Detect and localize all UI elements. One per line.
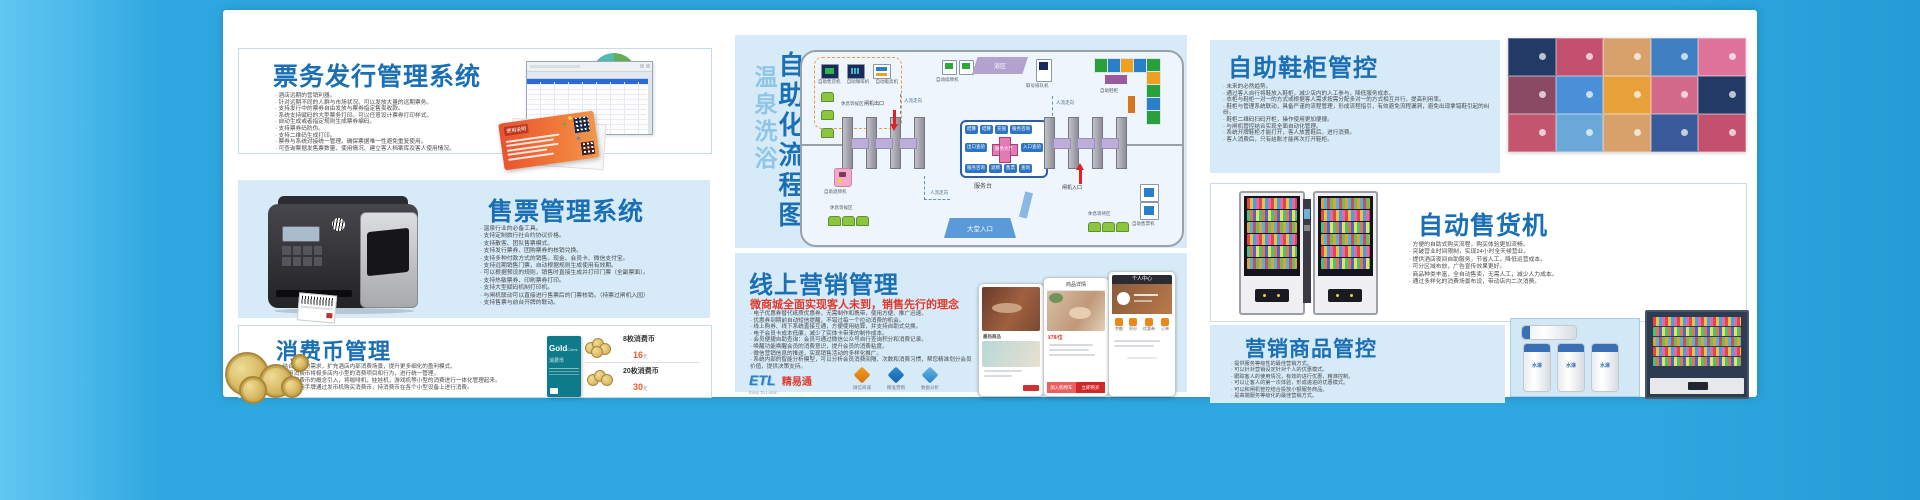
return-machine-icon <box>834 168 852 187</box>
list-item: 鞋柜与管理系统联动，具备严谨的流程管理，形成流程指引，有效避免流程漏洞，避免出现… <box>1223 104 1491 117</box>
phone-product-detail: 商品详情 ¥78/位 加入购物车 立即购买 <box>1043 277 1109 397</box>
list-item: 是高端服务等级化的最佳营销方式。 <box>1231 393 1493 399</box>
service-hall-label: 服务大厅 <box>992 146 1016 152</box>
wechat-mall-icon <box>854 367 871 384</box>
gate-bar <box>1053 138 1071 149</box>
label-printer-photo <box>268 190 423 314</box>
bullet-list: 温泉行业的必备工具。支持定制旅行社合约协议价格。支持散客、团队售票模式。支持发行… <box>480 226 705 307</box>
chairs-icon <box>821 90 835 144</box>
flow-dir-label: 人流走向 <box>904 98 922 104</box>
flow-room: 自助售货机 自助咖啡机 自动贩卖机 休息等候区 自动续牌机 浴区 取号排队机 <box>800 50 1184 247</box>
list-item: 线上购券、线下系统直接互通，方便使用结算，并支持自助式兑换。 <box>750 324 976 331</box>
renew-machine-icon <box>959 60 974 75</box>
bottle-label: 水淋 <box>1524 362 1550 369</box>
panel-title: 自动售货机 <box>1418 206 1548 242</box>
bullet-list: 提供服务等级性的最佳营销方式。可以针对营销设定针对个人的优惠模式。跟踪客人的使用… <box>1231 361 1493 399</box>
rest-area-label: 休息等待区 <box>1088 212 1111 217</box>
renew-machine-label: 自动续牌机 <box>936 78 959 83</box>
panel-ticket-sale: 售票管理系统 温泉行业的必备工具。支持定制旅行社合约协议价格。支持散客、团队售票… <box>238 180 710 318</box>
profile-banner <box>1112 284 1172 314</box>
list-item: 通过多样化的消费场景布设，带动店内二次消费。 <box>1409 279 1734 286</box>
bottle-label: 水淋 <box>1558 362 1584 369</box>
waiting-area-box: 自助售货机 自助咖啡机 自动贩卖机 休息等候区 <box>814 57 902 129</box>
price-text: ¥78/位 <box>1048 334 1105 341</box>
chairs-icon <box>828 214 870 232</box>
bullet-list: 电子优惠券替代纸质优惠券，无需制作和携带，使用方便、推广迅速。优惠券到期前自动短… <box>750 311 976 370</box>
list-item: 支持售票与前台开牌的联动。 <box>480 300 705 307</box>
list-item: 可分区域布放，广告宣传效果更好。 <box>1409 264 1734 271</box>
gold-coins-card: GoldCoins 消费币 <box>547 336 581 397</box>
gate-bar <box>899 138 917 149</box>
lobby-entry: 大堂入口 <box>944 218 1016 238</box>
detail-buttons: 加入购物车 立即购买 <box>1047 382 1105 393</box>
icon-caption: 积分 <box>1129 326 1137 332</box>
feature-icons-row: 微信商城 精准营销 数据分析 <box>853 369 939 391</box>
bullet-list: 方便的自助式购买流程，购买体验更加流畅。突破营业时间限制，实现24小时全天候营业… <box>1409 242 1734 286</box>
small-vending-photo <box>1645 310 1749 399</box>
qr-code-icon <box>581 141 596 156</box>
precise-marketing-icon <box>888 367 905 384</box>
panel-title: 售票管理系统 <box>488 192 644 228</box>
card-brand2: Coins <box>567 347 577 352</box>
service-chip-right: 入口查验 <box>1021 143 1043 152</box>
list-item: 唤醒功能唤醒会员的消费意识，提升会员的消费粘度。 <box>750 344 976 351</box>
list-item: 结算 <box>965 125 978 134</box>
service-hall-cross-icon: 服务大厅 <box>992 137 1016 161</box>
list-item: 服务咨询 <box>965 164 987 173</box>
price-name: 20枚消费币 <box>623 366 659 376</box>
list-item: 酒店远期的营销利器。 <box>275 93 515 100</box>
list-item: 支持发行票券、团购票券的核销兑换。 <box>480 248 705 255</box>
profile-icon-orders[interactable]: 订单 <box>1161 318 1169 332</box>
gate-exit-label: 闸机出口 <box>864 102 884 107</box>
printer-screen <box>282 226 320 242</box>
ticket-machine-icon <box>1140 184 1159 202</box>
bottles-photo: 水淋 水淋 水淋 <box>1510 318 1640 397</box>
panel-shoe-locker: 自助鞋柜管控 未来的必然趋势。通过客人自行将鞋放入鞋柜，减少店内的人工参与，降低… <box>1210 40 1500 173</box>
vending-machine-icon <box>821 64 839 79</box>
service-chips-top: 结算结算充值服务咨询 <box>965 125 1032 134</box>
list-item: 鞋柜二维码扫码开柜，操作使用更加便捷。 <box>1223 117 1491 124</box>
ticket-machine-icon <box>1140 202 1159 220</box>
snack-machine-icon <box>873 64 891 79</box>
bullet-list: 酒店远期的营销利器。针对远期不同的人群与市场状况。可以发放大量的远期票务。支持发… <box>275 93 515 152</box>
list-item: 服务咨询 <box>1010 125 1032 134</box>
poster-canvas: 票务发行管理系统 酒店远期的营销利器。针对远期不同的人群与市场状况。可以发放大量… <box>223 10 1757 397</box>
bathing-photo <box>1047 291 1105 331</box>
locker-cell <box>1146 110 1161 125</box>
gate-bar <box>1077 138 1095 149</box>
price-unit: 元 <box>643 386 648 391</box>
poster-page: { "theme":{"outer_blue":"#2ea7e0","panel… <box>0 0 1920 500</box>
icon-caption: 订单 <box>1161 326 1169 332</box>
printed-label <box>297 292 337 323</box>
list-item: 支持发行中的票券自由发放与票券指定售卖收款。 <box>275 106 515 113</box>
list-item: 客人消费后，只有结账才能再次打开鞋柜。 <box>1223 137 1491 144</box>
feature-data: 数据分析 <box>921 369 939 391</box>
logo-slogan: Easy To Learn <box>749 390 812 395</box>
shoe-locker-label: 自助鞋柜 <box>1100 89 1118 94</box>
shoe-locker-photo <box>1508 38 1746 152</box>
renew-machine-icon <box>942 60 957 75</box>
feature-wechat: 微信商城 <box>853 369 871 391</box>
price-list: 8枚消费币 16元 20枚消费币 30元 <box>585 334 705 394</box>
panel-title: 线上营销管理 <box>749 265 899 300</box>
chairs-icon <box>1088 220 1130 238</box>
data-analysis-icon <box>922 367 939 384</box>
list-item: 支持大型赋码机制打印机。 <box>480 285 705 292</box>
price-name: 8枚消费币 <box>623 334 655 344</box>
price-tag <box>1023 385 1039 391</box>
service-chips-bottom: 服务咨询退牌售票查询 <box>965 164 1032 173</box>
profile-icon-balance[interactable]: 余额 <box>1115 318 1123 332</box>
price-value: 16 <box>633 350 643 360</box>
service-chip-left: 出口查验 <box>965 143 987 152</box>
detail-header: 商品详情 <box>1047 281 1105 291</box>
machine-label: 自助咖啡机 <box>847 80 870 85</box>
add-cart-button[interactable]: 加入购物车 <box>1047 382 1076 393</box>
gate-entry-label: 闸机入口 <box>1062 186 1082 191</box>
hot-items-label: 最热商品 <box>983 334 1040 340</box>
feature-marketing: 精准营销 <box>887 369 905 391</box>
panel-marketing: 线上营销管理 微商城全面实现客人未到，销售先行的理念 电子优惠券替代纸质优惠券，… <box>735 253 1187 392</box>
flow-dir-label: 人流走向 <box>930 190 948 196</box>
etl-logo: ETL 精易通 Easy To Learn <box>749 372 812 390</box>
machine-label: 自动贩卖机 <box>876 80 899 85</box>
list-item: 与闸机联动可以直接进行售票后的门票核销。（持票过闸机入园） <box>480 293 705 300</box>
list-item: 支持定制旅行社合约协议价格。 <box>480 233 705 240</box>
panel-title: 营销商品管控 <box>1245 333 1377 363</box>
card-name: 消费币 <box>549 357 579 364</box>
list-item: 突破营业时间限制，实现24小时全天候营业。 <box>1409 249 1734 256</box>
panel-title: 自助鞋柜管控 <box>1228 48 1378 83</box>
phone-hot-items: 最热商品 <box>978 283 1044 397</box>
rest-area-label: 休息等候区 <box>841 102 864 107</box>
bath-zone: 浴区 <box>972 57 1028 74</box>
list-item: 支持票券码防伪。 <box>275 126 515 133</box>
list-item: 退牌 <box>989 164 1002 173</box>
vending-machine-photo <box>1239 191 1374 313</box>
buy-now-button[interactable]: 立即购买 <box>1076 382 1105 393</box>
gate-bar <box>875 138 893 149</box>
locker-bench-2 <box>1128 96 1135 113</box>
list-item: 支持多种付款方式的销售。现金、会员卡、微信支付宝。 <box>480 256 705 263</box>
gate-bar <box>1101 138 1119 149</box>
bullet-list: 未来的必然趋势。通过客人自行将鞋放入鞋柜，减少店内的人工参与，降低服务成本。衣柜… <box>1223 84 1491 143</box>
order-icon <box>1161 318 1169 326</box>
list-item: 会员便捷自助查询：会员可通过微信公众号自行查询积分和消费记录。 <box>750 337 976 344</box>
list-item: 电子优惠券替代纸质优惠券，无需制作和携带，使用方便、推广迅速。 <box>750 311 976 318</box>
feature-caption: 数据分析 <box>921 385 939 391</box>
exit-arrow-icon <box>890 110 898 131</box>
balance-icon <box>1115 318 1123 326</box>
price-unit: 元 <box>643 354 648 359</box>
panel-goods: 营销商品管控 提供服务等级性的最佳营销方式。可以针对营销设定针对个人的优惠模式。… <box>1210 325 1505 403</box>
coins-thumb <box>585 338 615 356</box>
service-desk-label: 服务台 <box>974 184 992 190</box>
logo-name: 精易通 <box>782 377 812 388</box>
feature-caption: 微信商城 <box>853 385 871 391</box>
gate-bar <box>851 138 869 149</box>
panel-subtitle: 微商城全面实现客人未到，销售先行的理念 <box>750 296 959 312</box>
list-item: 商品种类丰富，全自动售卖，无需人工，减少人力成本。 <box>1409 272 1734 279</box>
icon-caption: 优惠券 <box>1143 326 1155 332</box>
card-brand: Gold <box>549 344 567 353</box>
list-item: 票券与系统对接统一管理。确保票据唯一性避免重复使用。 <box>275 139 515 146</box>
spa-photo <box>982 287 1040 331</box>
coupon-icon <box>1145 318 1153 326</box>
zebra-logo-icon <box>332 218 345 231</box>
profile-header: 个人中心 <box>1112 275 1172 284</box>
panel-flowchart: 温泉洗浴 自助化流程图 自助售货机 自助咖啡机 自动贩卖机 休息等候区 <box>735 35 1187 248</box>
list-item: 可查询票据发售票数量、使用情况、建立客人档案库及客人使用情况。 <box>275 146 515 153</box>
logo-text: ETL <box>749 372 775 388</box>
flow-dir-label: 人流走向 <box>1056 100 1074 106</box>
list-item: 自动生成或者指定规则生成票券编码。 <box>275 119 515 126</box>
locker-bench <box>1105 75 1127 84</box>
queue-machine-label: 取号排队机 <box>1026 84 1049 89</box>
bottle-label: 水淋 <box>1592 362 1618 369</box>
price-value: 30 <box>633 382 643 392</box>
ticket-machine-label: 自助售票机 <box>1132 222 1155 227</box>
list-item: 可以根据预设的规则，销售时直接生成并打印门票（全副票面）。 <box>480 270 705 277</box>
profile-icon-grid: 余额 积分 优惠券 订单 <box>1112 318 1172 332</box>
list-item: 售票 <box>1004 164 1017 173</box>
vending-control-column <box>1303 199 1311 303</box>
gold-coins-photo <box>225 346 355 401</box>
list-item: 系统开牌鞋柜才能打开，客人放置鞋后，进行消费。 <box>1223 130 1491 137</box>
list-item: 未来的必然趋势。 <box>1223 84 1491 91</box>
panel-ticket-issue: 票务发行管理系统 酒店远期的营销利器。针对远期不同的人群与市场状况。可以发放大量… <box>238 48 712 154</box>
feature-caption: 精准营销 <box>887 385 905 391</box>
coffee-machine-icon <box>847 64 865 79</box>
entrance-door <box>1019 191 1033 218</box>
qr-code-icon <box>573 116 590 133</box>
profile-icon-coupons[interactable]: 优惠券 <box>1143 318 1155 332</box>
return-machine-label: 自助退牌机 <box>824 190 847 195</box>
bath-photo <box>982 341 1040 367</box>
machine-label: 自助售货机 <box>818 80 841 85</box>
icon-caption: 余额 <box>1115 326 1123 332</box>
list-item: 结算 <box>980 125 993 134</box>
panel-title: 票务发行管理系统 <box>273 57 481 93</box>
points-icon <box>1129 318 1137 326</box>
coins-thumb <box>585 370 615 388</box>
phone-profile: 个人中心 余额 积分 优惠券 订单 <box>1108 271 1176 397</box>
avatar <box>1117 292 1130 305</box>
rest-area-label: 休息等候区 <box>830 206 853 211</box>
list-item: 衣柜与鞋柜一对一的方式或根据客人需求按需分配多对一的方式相互并行，提高利用率。 <box>1223 97 1491 104</box>
panel-vending: 自动售货机 方便的自助式购买流程，购买体验更加流畅。突破营业时间限制，实现24小… <box>1210 183 1747 322</box>
service-hall-box: 结算结算充值服务咨询 出口查验 入口查验 服务大厅 服务咨询退牌售票查询 <box>960 120 1048 178</box>
queue-machine-icon <box>1036 59 1052 82</box>
list-item: 充值 <box>995 125 1008 134</box>
profile-icon-points[interactable]: 积分 <box>1129 318 1137 332</box>
list-item: 查询 <box>1019 164 1032 173</box>
